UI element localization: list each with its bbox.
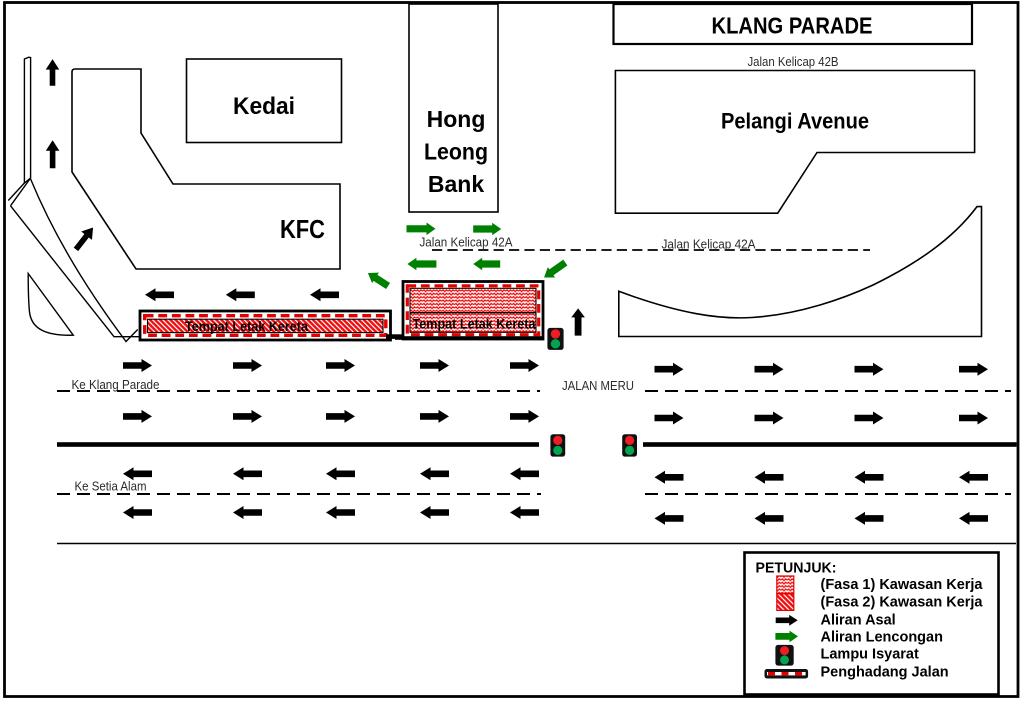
- svg-text:Penghadang Jalan: Penghadang Jalan: [821, 665, 949, 681]
- svg-text:(Fasa 1) Kawasan Kerja: (Fasa 1) Kawasan Kerja: [821, 577, 984, 593]
- svg-text:KLANG PARADE: KLANG PARADE: [712, 13, 873, 39]
- svg-text:Hong: Hong: [427, 106, 486, 132]
- svg-text:Jalan Kelicap 42A: Jalan Kelicap 42A: [420, 235, 513, 250]
- svg-text:Tempat Letak Kereta: Tempat Letak Kereta: [185, 319, 308, 334]
- svg-text:Jalan Kelicap 42B: Jalan Kelicap 42B: [748, 54, 839, 69]
- svg-text:(Fasa 2) Kawasan Kerja: (Fasa 2) Kawasan Kerja: [821, 595, 984, 611]
- svg-text:Lampu Isyarat: Lampu Isyarat: [821, 647, 919, 663]
- svg-text:JALAN MERU: JALAN MERU: [562, 379, 634, 393]
- svg-text:PETUNJUK:: PETUNJUK:: [756, 560, 837, 577]
- svg-text:Ke Setia Alam: Ke Setia Alam: [75, 480, 147, 494]
- svg-text:Kedai: Kedai: [233, 93, 295, 120]
- svg-text:Ke Klang Parade: Ke Klang Parade: [72, 378, 160, 392]
- svg-text:Tempat Letak Kereta: Tempat Letak Kereta: [413, 317, 536, 332]
- svg-text:Bank: Bank: [428, 171, 484, 197]
- svg-text:KFC: KFC: [280, 214, 325, 244]
- svg-text:Pelangi Avenue: Pelangi Avenue: [721, 109, 869, 134]
- svg-text:Aliran Lencongan: Aliran Lencongan: [821, 630, 943, 646]
- svg-text:Jalan Kelicap 42A: Jalan Kelicap 42A: [662, 237, 756, 252]
- svg-text:Aliran Asal: Aliran Asal: [821, 613, 896, 629]
- svg-text:Leong: Leong: [424, 139, 488, 165]
